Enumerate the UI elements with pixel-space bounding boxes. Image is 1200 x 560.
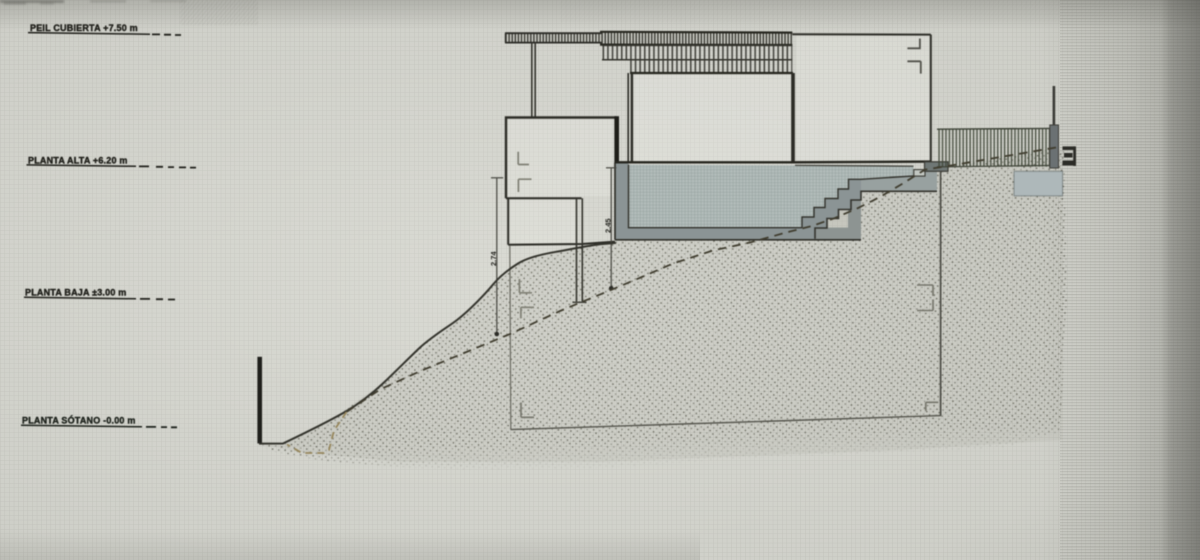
svg-text:PLANTA BAJA ±3.00 m: PLANTA BAJA ±3.00 m bbox=[25, 288, 126, 298]
svg-text:PLANTA SÓTANO -0.00 m: PLANTA SÓTANO -0.00 m bbox=[22, 415, 136, 426]
svg-text:2.74: 2.74 bbox=[489, 251, 498, 266]
svg-text:PLANTA ALTA +6.20 m: PLANTA ALTA +6.20 m bbox=[28, 156, 128, 166]
svg-text:PEIL CUBIERTA +7.50 m: PEIL CUBIERTA +7.50 m bbox=[30, 23, 138, 33]
svg-text:2.45: 2.45 bbox=[604, 218, 613, 233]
